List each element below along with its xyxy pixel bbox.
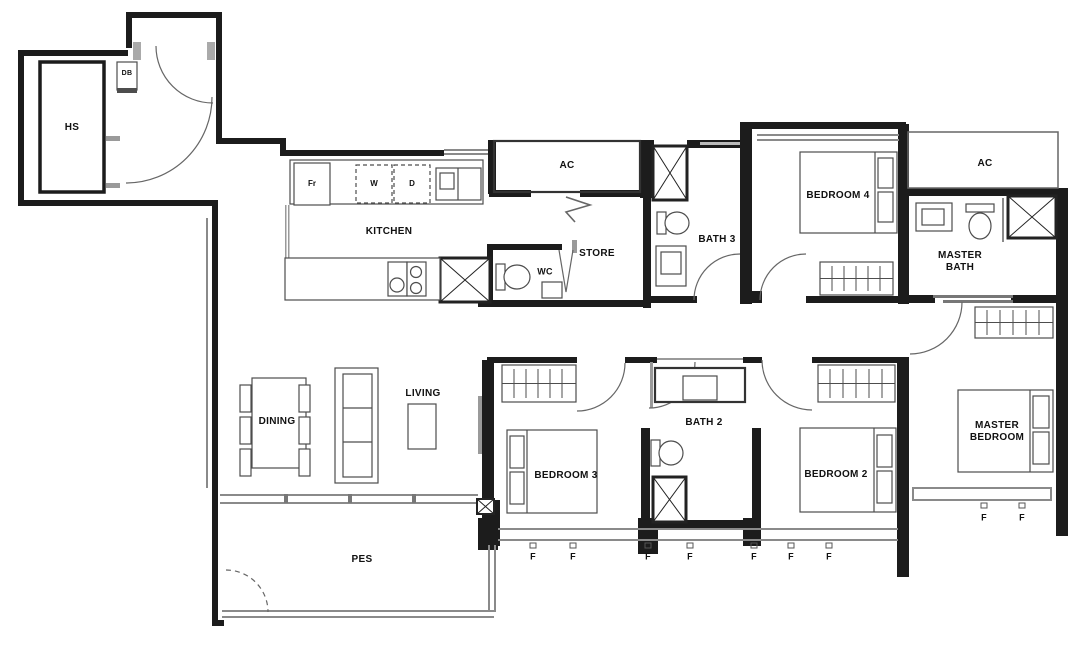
window-marker-label: F xyxy=(645,552,651,563)
kitchen-top-counter xyxy=(290,160,483,205)
shaft-kitchen-icon xyxy=(440,258,490,302)
floor-plan-linework xyxy=(0,0,1084,648)
wardrobe-bedroom4-icon xyxy=(820,262,893,295)
shaft-bath2-icon xyxy=(653,477,686,522)
room-label-dining: DINING xyxy=(259,416,296,428)
window-marker-label: F xyxy=(981,513,987,524)
junction-box-icon xyxy=(477,499,494,514)
window-marker-label: F xyxy=(788,552,794,563)
room-label-hs: HS xyxy=(65,122,80,134)
room-label-bath3: BATH 3 xyxy=(698,234,735,246)
fridge-label: Fr xyxy=(308,179,316,189)
walls xyxy=(18,12,1068,626)
room-label-kitchen: KITCHEN xyxy=(366,226,413,238)
washer-label: W xyxy=(370,179,378,189)
db-box-base xyxy=(117,88,137,93)
hs-door-arc xyxy=(126,97,212,183)
window-marker-label: F xyxy=(1019,513,1025,524)
room-label-master-bath: MASTER BATH xyxy=(931,250,989,274)
master-bath-toilet-icon xyxy=(966,204,994,212)
window-f-markers xyxy=(530,503,1025,548)
floor-plan-canvas: HS DB Fr W D KITCHEN AC STORE WC BATH 3 … xyxy=(0,0,1084,648)
wardrobe-master-icon xyxy=(975,307,1053,338)
wardrobe-bedroom3-icon xyxy=(502,365,576,402)
entry-door-arc xyxy=(156,46,213,103)
window-marker-label: F xyxy=(530,552,536,563)
room-label-master-bedroom: MASTER BEDROOM xyxy=(959,420,1035,444)
bedroom2-door-arc xyxy=(762,360,812,410)
room-label-bedroom2: BEDROOM 2 xyxy=(804,469,867,481)
room-label-wc: WC xyxy=(537,267,553,278)
kitchen-lower-counter xyxy=(285,258,440,300)
master-bedroom-door-arc xyxy=(910,302,962,354)
db-label: DB xyxy=(122,70,133,78)
wc-basin-icon xyxy=(542,282,562,298)
shaft-bath3-icon xyxy=(653,146,687,200)
room-label-ac-right: AC xyxy=(977,158,992,170)
wardrobe-bedroom2-icon xyxy=(818,365,895,402)
room-label-living: LIVING xyxy=(405,388,440,400)
door-arcs xyxy=(126,46,962,612)
window-marker-label: F xyxy=(751,552,757,563)
window-marker-label: F xyxy=(826,552,832,563)
room-label-bath2: BATH 2 xyxy=(685,417,722,429)
store-vent-symbol xyxy=(566,197,590,222)
room-label-store: STORE xyxy=(579,248,615,260)
coffee-table-icon xyxy=(408,404,436,449)
window-marker-label: F xyxy=(687,552,693,563)
bedroom3-door-arc xyxy=(577,363,625,411)
window-marker-label: F xyxy=(570,552,576,563)
dryer-label: D xyxy=(409,179,415,189)
bedroom4-door-arc xyxy=(760,254,806,300)
room-label-pes: PES xyxy=(352,554,373,566)
windows xyxy=(106,42,1052,618)
shaft-master-bath-icon xyxy=(1008,196,1056,238)
room-label-ac-left: AC xyxy=(559,160,574,172)
sofa-icon xyxy=(335,368,378,483)
room-label-bedroom3: BEDROOM 3 xyxy=(534,470,597,482)
master-bath-fixtures xyxy=(916,203,994,239)
room-label-bedroom4: BEDROOM 4 xyxy=(806,190,869,202)
pes-gate-arc xyxy=(226,570,268,612)
bath3-fixtures xyxy=(656,212,689,286)
bath3-door-arc xyxy=(694,254,740,300)
